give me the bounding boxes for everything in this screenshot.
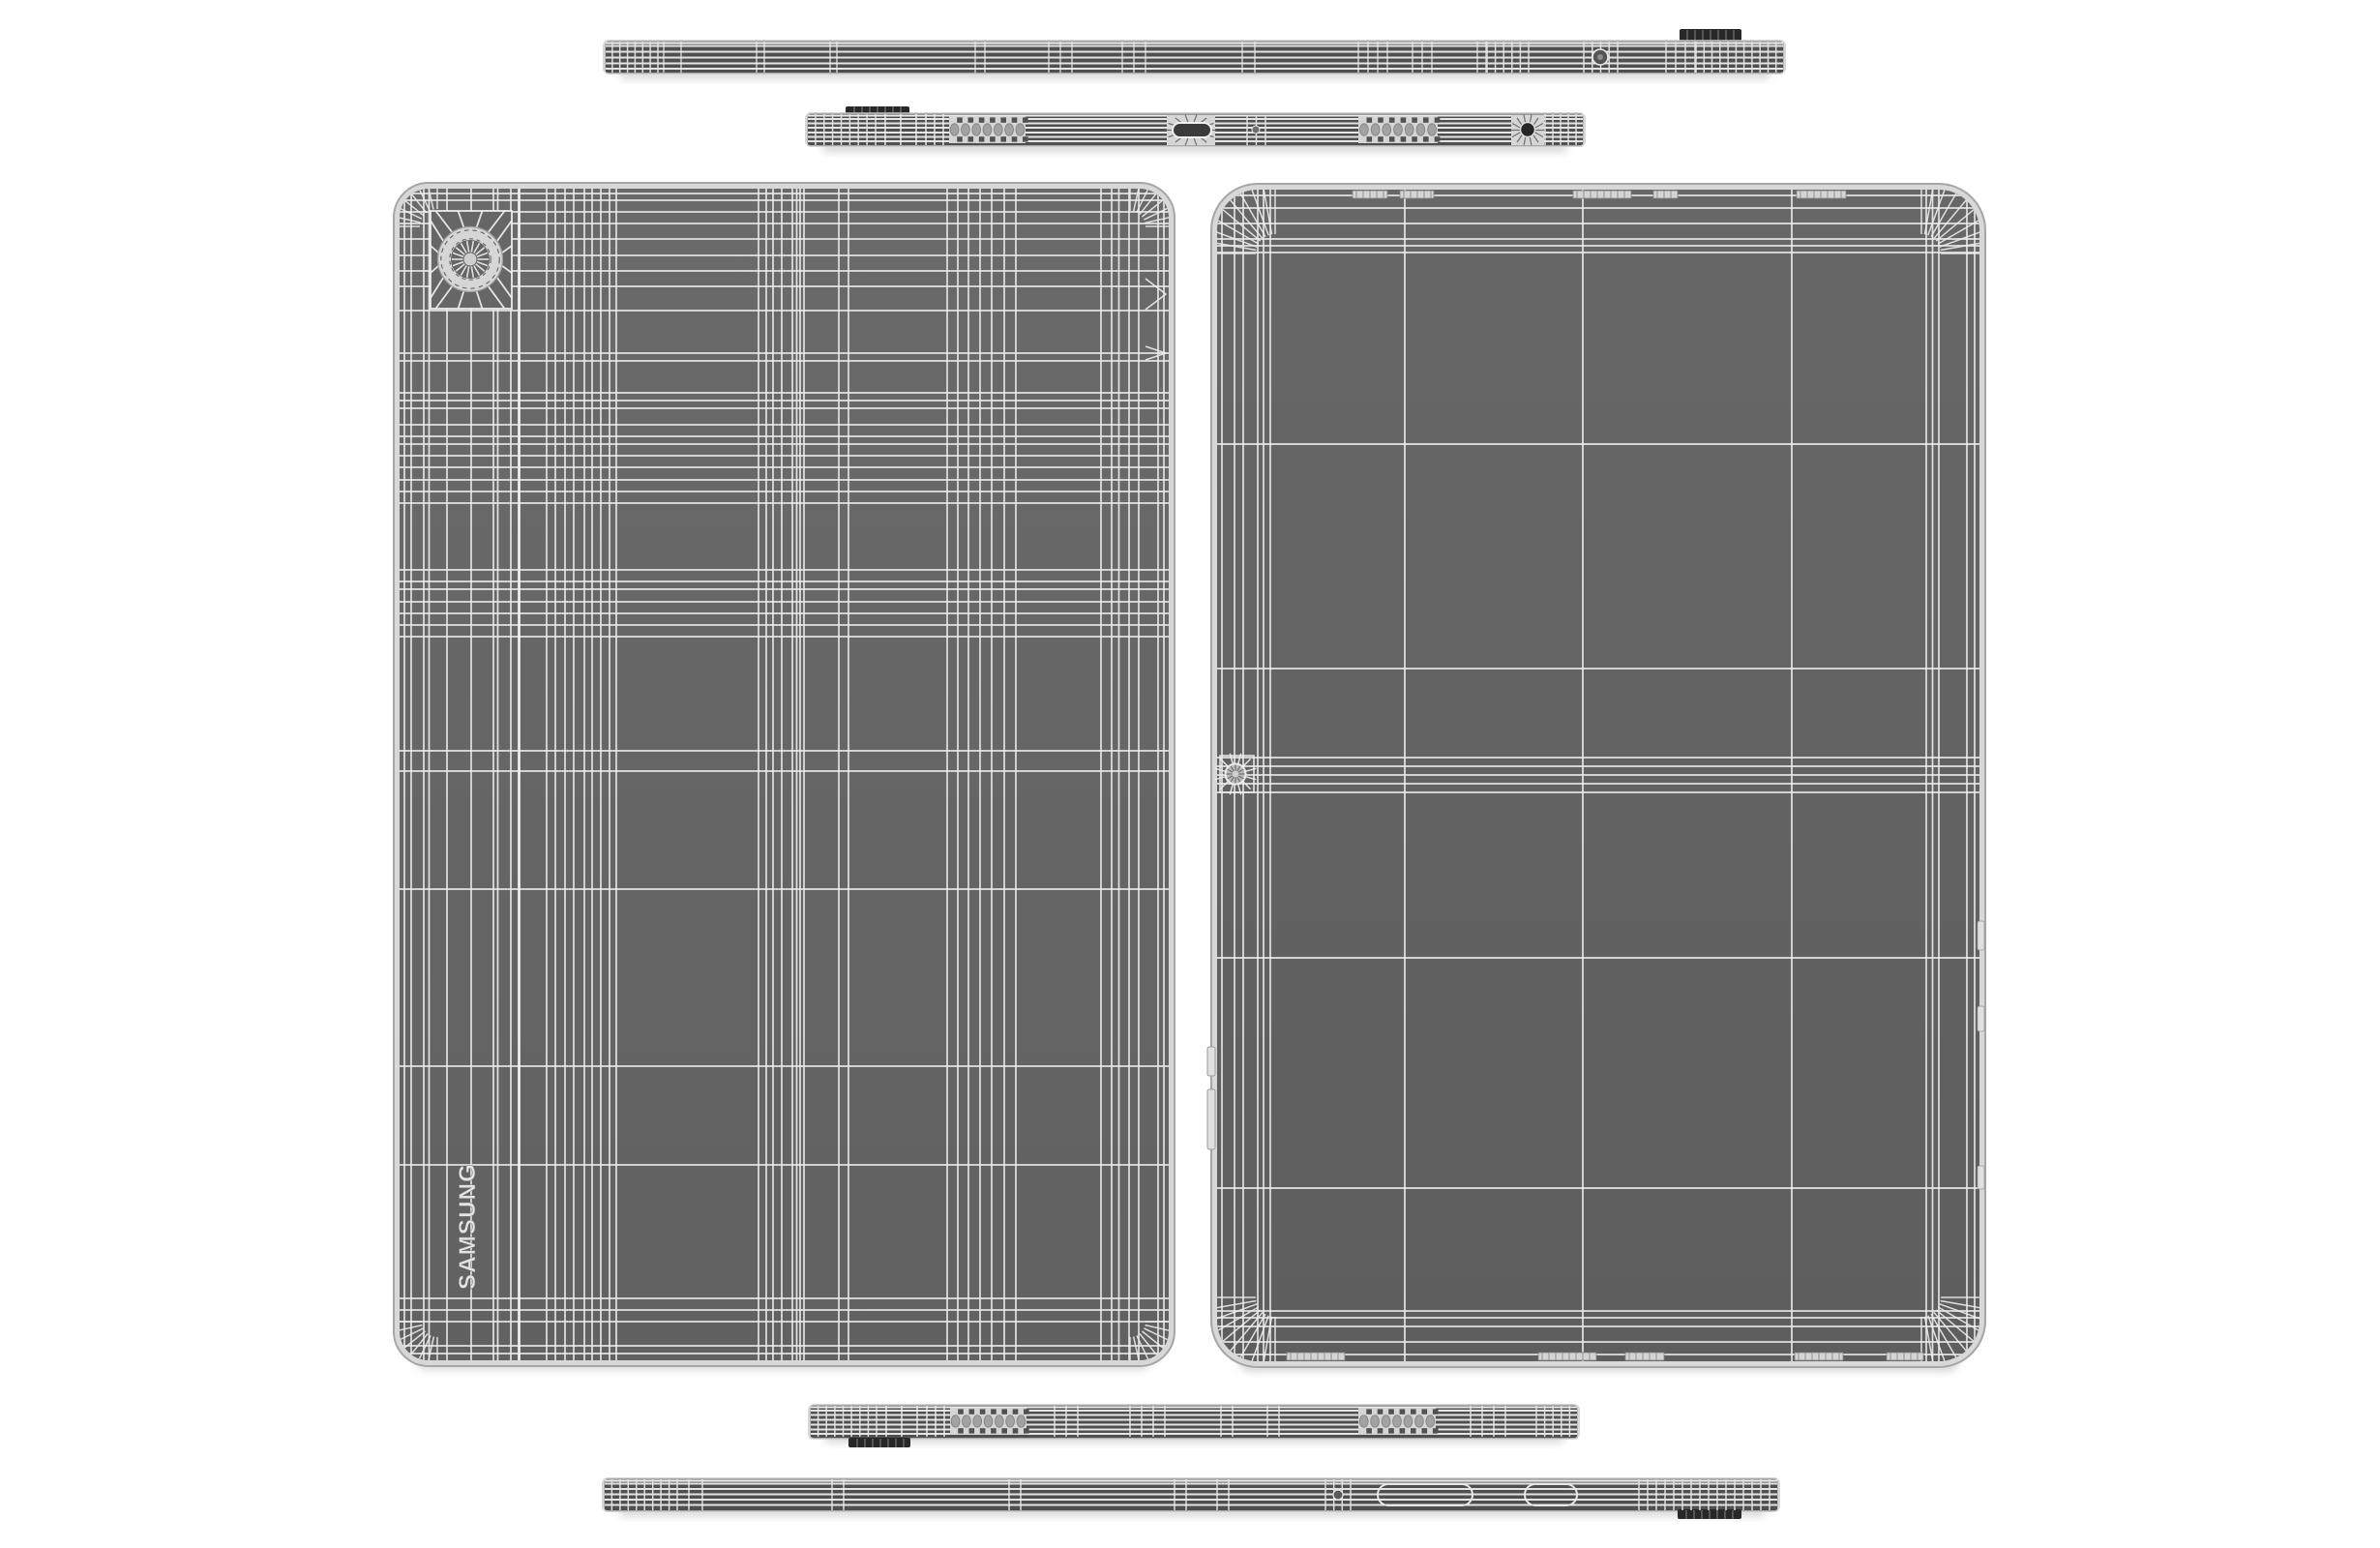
svg-text:SAMSUNG: SAMSUNG: [455, 1163, 481, 1290]
